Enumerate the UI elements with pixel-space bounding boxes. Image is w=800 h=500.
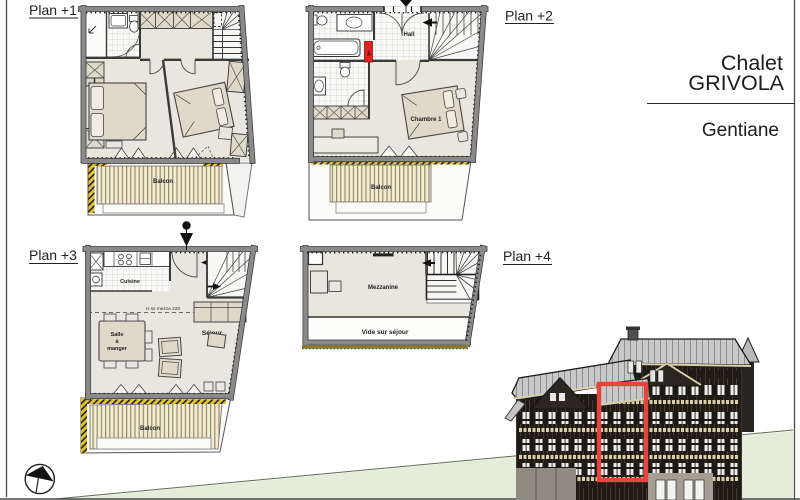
svg-text:Salle: Salle — [111, 332, 124, 338]
svg-text:Vide sur séjour: Vide sur séjour — [362, 329, 409, 336]
svg-text:Balcon: Balcon — [153, 179, 173, 185]
svg-text:Balcon: Balcon — [140, 426, 160, 432]
svg-text:Plan +2: Plan +2 — [505, 8, 553, 24]
svg-text:Plan +4: Plan +4 — [503, 248, 551, 264]
svg-text:Chambre 1: Chambre 1 — [410, 117, 442, 123]
svg-text:Hall: Hall — [403, 32, 414, 38]
svg-text:GRIVOLA: GRIVOLA — [688, 71, 784, 95]
svg-text:manger: manger — [107, 346, 128, 352]
svg-text:H ss mezza 220: H ss mezza 220 — [146, 306, 181, 312]
svg-text:Cuisine: Cuisine — [120, 279, 140, 285]
svg-text:Gentiane: Gentiane — [702, 120, 779, 141]
svg-text:Plan +3: Plan +3 — [29, 247, 77, 263]
svg-text:Mezzanine: Mezzanine — [368, 285, 399, 291]
svg-text:Plan +1: Plan +1 — [29, 2, 77, 18]
svg-text:Balcon: Balcon — [371, 185, 391, 191]
